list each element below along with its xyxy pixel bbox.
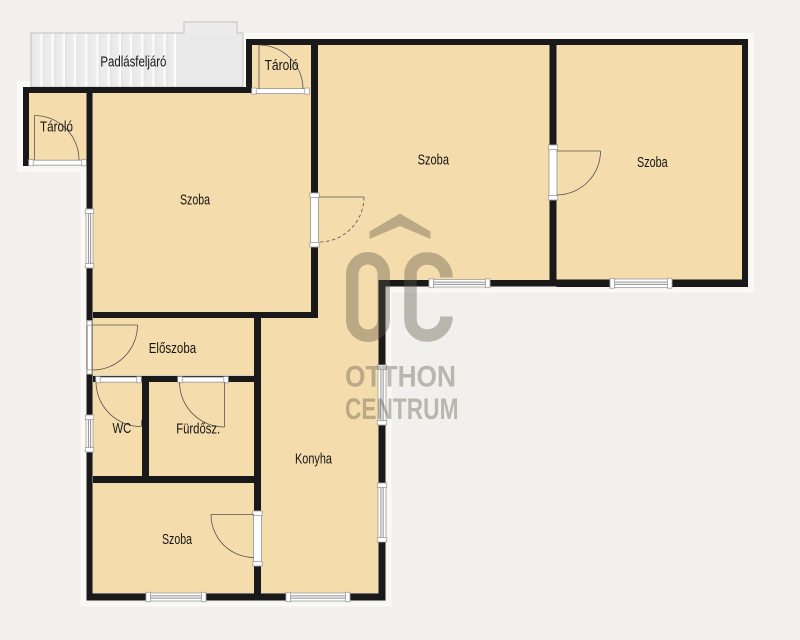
- svg-text:Padlásfeljáró: Padlásfeljáró: [100, 54, 166, 71]
- svg-text:Szoba: Szoba: [637, 154, 668, 171]
- svg-text:Szoba: Szoba: [418, 151, 450, 168]
- svg-text:WC: WC: [113, 420, 132, 437]
- svg-text:Tároló: Tároló: [40, 118, 73, 135]
- svg-text:Szoba: Szoba: [162, 531, 192, 548]
- svg-text:Szoba: Szoba: [180, 192, 210, 209]
- svg-text:OTTHON: OTTHON: [345, 361, 456, 394]
- svg-text:Tároló: Tároló: [265, 57, 299, 74]
- svg-text:Fürdősz.: Fürdősz.: [176, 421, 220, 438]
- svg-text:Előszoba: Előszoba: [149, 340, 197, 357]
- svg-text:Konyha: Konyha: [295, 451, 332, 468]
- svg-text:CENTRUM: CENTRUM: [345, 393, 459, 426]
